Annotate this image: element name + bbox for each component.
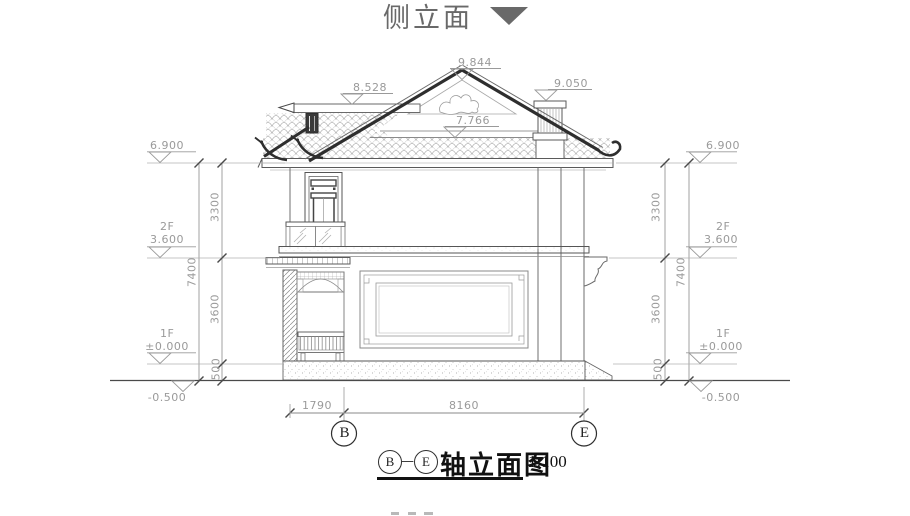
right-floor1-label: 1F	[716, 327, 730, 340]
left-level-top: 6.900	[144, 139, 190, 152]
caption-underline	[377, 477, 523, 480]
base-plinth	[283, 361, 585, 380]
floor-slab	[279, 247, 589, 254]
left-floor2-label: 2F	[160, 220, 174, 233]
right-dim-total: 7400	[675, 257, 688, 287]
left-floor1-level: ±0.000	[144, 340, 190, 353]
porch-lintel	[297, 272, 344, 292]
left-dim-total: 7400	[186, 257, 199, 287]
axis-label-e: E	[572, 425, 597, 442]
wall-panel	[360, 271, 528, 348]
porch-railing	[298, 332, 344, 361]
caption-dash: —	[401, 454, 414, 469]
left-dim-base: 500	[210, 358, 223, 381]
ridge-end-block	[306, 114, 318, 134]
first-floor-group	[266, 258, 612, 381]
porch-awning	[266, 258, 350, 265]
left-ground-level: -0.500	[144, 391, 190, 404]
right-floor2-level: 3.600	[698, 233, 744, 246]
drawing-sheet: 侧立面 9.844 8.528 9.050 7.766 6.900 2F 3.6…	[0, 0, 910, 516]
level-pediment: 7.766	[450, 114, 496, 127]
left-floor2-level: 3.600	[144, 233, 190, 246]
second-floor-window	[305, 173, 342, 227]
corbel-bracket	[584, 257, 607, 286]
left-dim-lower: 3600	[209, 294, 222, 324]
right-dim-upper: 3300	[650, 192, 663, 222]
right-level-top: 6.900	[700, 139, 746, 152]
title-triangle-icon	[490, 7, 528, 25]
level-left-ridge: 8.528	[347, 81, 393, 94]
right-ground-level: -0.500	[698, 391, 744, 404]
caption-scale: 1:100	[528, 452, 567, 472]
left-floor1-label: 1F	[160, 327, 174, 340]
clipped-text-stub	[424, 512, 433, 515]
clipped-text-stub	[408, 512, 416, 515]
caption-axis-e: E	[414, 450, 438, 474]
axis-label-b: B	[332, 425, 357, 442]
balcony-railing	[286, 222, 345, 247]
clipped-text-stub	[391, 512, 399, 515]
left-dim-upper: 3300	[209, 192, 222, 222]
sheet-title: 侧立面	[383, 0, 473, 35]
level-peak: 9.844	[452, 56, 498, 69]
right-dim-lower: 3600	[650, 294, 663, 324]
right-dim-base: 500	[652, 358, 665, 381]
caption-axis-b: B	[378, 450, 402, 474]
right-floor2-label: 2F	[716, 220, 730, 233]
bottom-dim-main: 8160	[441, 399, 487, 412]
right-floor1-level: ±0.000	[698, 340, 744, 353]
elevation-drawing	[0, 0, 910, 516]
level-chimney: 9.050	[548, 77, 594, 90]
porch-column	[283, 270, 297, 361]
bottom-dim-left: 1790	[294, 399, 340, 412]
